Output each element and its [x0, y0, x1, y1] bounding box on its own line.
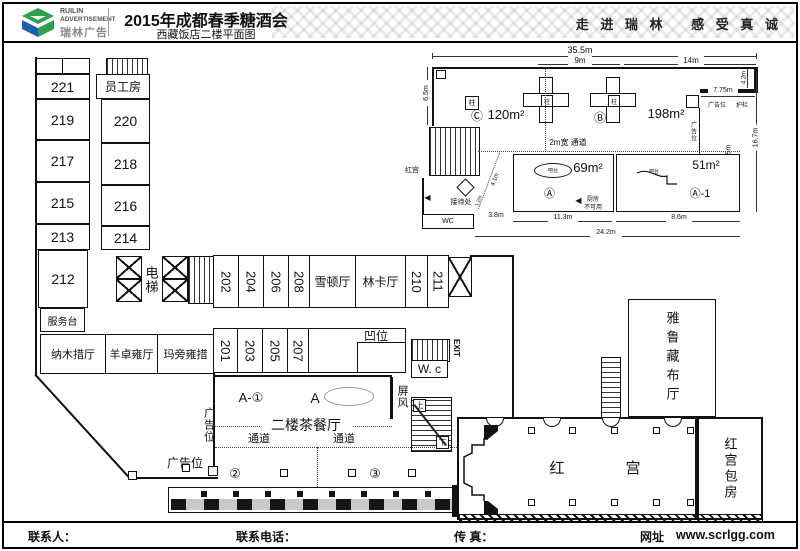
redpalace-private-room: 红宫包房 — [697, 417, 763, 520]
dim-tick — [432, 53, 433, 59]
dim-42-label: 4.2m — [740, 67, 749, 89]
passage-2m-label: 2m宽 通道 — [540, 137, 596, 148]
footer-contact-label: 联系人： — [28, 528, 76, 545]
wall — [213, 375, 392, 377]
zone-c-area: 120m² — [484, 107, 528, 121]
dim-14-label: 14m — [678, 56, 704, 65]
wc-room: W. c — [411, 360, 448, 378]
ad-pos-vertical-label: 广告位 — [688, 115, 698, 147]
cross-structure: 柱 — [523, 77, 569, 123]
booth-211: 211 — [427, 255, 449, 308]
header: RUILIN ADVERTISEMENT 瑞林广告 2015年成都春季糖酒会 西… — [4, 4, 796, 43]
column-square — [128, 471, 137, 480]
column-square — [569, 427, 576, 434]
column-square — [280, 469, 288, 477]
booth-204-label: 204 — [244, 271, 259, 293]
reception-label: 接待处 — [447, 197, 475, 206]
booth-206-label: 206 — [269, 271, 284, 293]
room-215: 215 — [35, 182, 90, 224]
hall-mapangyong-label: 玛旁雍措 — [164, 346, 208, 362]
column-square — [208, 466, 218, 476]
elevator-icon — [116, 279, 142, 302]
column-label: 柱 — [541, 95, 553, 107]
column-square — [611, 499, 618, 506]
wall — [432, 67, 758, 69]
booth-206: 206 — [263, 255, 289, 308]
column-square — [611, 427, 618, 434]
hall-yarlung: 雅鲁藏布厅 — [628, 299, 716, 417]
zone-c-mark: Ⓒ — [470, 108, 484, 122]
flyer-sheet: RUILIN ADVERTISEMENT 瑞林广告 2015年成都春季糖酒会 西… — [0, 0, 800, 551]
bar-counter-oval: 吧台 — [534, 163, 572, 178]
booth-208-label: 208 — [292, 271, 307, 293]
booth-207-label: 207 — [291, 340, 306, 362]
booth-205: 205 — [262, 328, 288, 373]
hall-mapangyong: 玛旁雍措 — [157, 334, 214, 374]
booth-207: 207 — [287, 328, 309, 373]
hall-yangzhuoyong-label: 羊卓雍厅 — [110, 346, 154, 362]
footer-phone-label: 联系电话： — [236, 528, 296, 545]
wall — [512, 255, 514, 417]
recess-label: 凹位 — [358, 329, 394, 342]
booth-210-label: 210 — [409, 271, 424, 293]
room-218: 218 — [101, 143, 150, 185]
hall-linka: 林卡厅 — [355, 255, 406, 308]
hall-yarlung-label: 雅鲁藏布厅 — [663, 311, 682, 406]
room-220-label: 220 — [114, 113, 137, 129]
dim-242-label: 24.2m — [590, 228, 622, 237]
page-subtitle: 西藏饭店二楼平面图 — [116, 26, 296, 42]
bar-label-2: 吧台 — [646, 167, 662, 175]
screen-label: 屏风 — [395, 381, 409, 413]
room-215-label: 215 — [51, 195, 74, 211]
room-221-label: 221 — [51, 79, 74, 95]
dim-775-label: 7.75m — [708, 86, 738, 95]
dim-total-label: 35.5m — [560, 45, 600, 55]
zone-a-mark-label: Ⓐ — [543, 186, 556, 199]
stairs-wc-icon — [411, 339, 450, 362]
room-218-label: 218 — [114, 156, 137, 172]
redpalace-label-1: 红 — [547, 457, 567, 477]
booth-201-label: 201 — [218, 340, 233, 362]
zone-b-area: 198m² — [643, 106, 689, 121]
room-217: 217 — [35, 140, 90, 182]
decor-band — [168, 487, 456, 513]
booth-204: 204 — [238, 255, 264, 308]
room-221: 221 — [35, 74, 90, 99]
staff-room: 员工房 — [96, 74, 150, 99]
elevator-label: 电梯 — [142, 257, 160, 303]
hall-namucuo: 纳木措厅 — [40, 334, 106, 374]
hall-yangzhuoyong: 羊卓雍厅 — [105, 334, 158, 374]
header-divider — [108, 8, 109, 36]
column-square — [569, 499, 576, 506]
room-box-empty-b — [62, 58, 90, 74]
column-square — [653, 499, 660, 506]
room-219: 219 — [35, 99, 90, 140]
zone-b-mark: Ⓑ — [593, 110, 607, 124]
hall-xuedun-label: 雪顿厅 — [314, 273, 350, 290]
elevator-icon — [116, 256, 142, 279]
footer-fax-label: 传 真： — [454, 528, 493, 545]
column-label: 柱 — [608, 95, 620, 107]
ruilin-logo-icon — [20, 7, 56, 38]
room-214-label: 214 — [114, 230, 137, 246]
ad-pos-small-label: 广告位 — [705, 100, 729, 108]
column-square — [528, 499, 535, 506]
logo-text-cn: 瑞林广告 — [60, 24, 108, 40]
elevator-icon — [162, 279, 188, 302]
wall — [130, 477, 218, 479]
stairs-upper-icon — [429, 127, 480, 176]
room-213-label: 213 — [51, 229, 74, 245]
hall-linka-label: 林卡厅 — [362, 273, 398, 290]
upper-wc-label: WC — [442, 218, 454, 225]
ad-column-box — [686, 95, 699, 108]
marker-2: ② — [227, 466, 243, 482]
column-square — [687, 499, 694, 506]
upper-wc-box: WC — [422, 214, 474, 229]
column-square — [436, 70, 446, 79]
room-212-label: 212 — [51, 271, 74, 287]
red-dir-label: 红宫 — [402, 165, 422, 174]
decor-squares — [175, 491, 449, 497]
zone-a1-mark-label: Ⓐ-1 — [684, 186, 716, 199]
room-220: 220 — [101, 99, 150, 143]
booth-202-label: 202 — [219, 271, 234, 293]
column-square — [528, 427, 535, 434]
booth-211-label: 211 — [431, 271, 446, 292]
staff-room-label: 员工房 — [105, 78, 141, 95]
room-box-empty-a — [35, 58, 63, 74]
service-desk: 服务台 — [40, 308, 85, 332]
footer: 联系人： 联系电话： 传 真： 网址 www.scrlgg.com — [4, 521, 796, 547]
stairs-top-icon — [106, 58, 148, 75]
dotted-line — [478, 151, 740, 152]
dimension-line — [701, 96, 755, 97]
dim-113-label: 11.3m — [548, 213, 578, 222]
booth-202: 202 — [213, 255, 239, 308]
kitchen-note-2: 不可用 — [582, 202, 604, 210]
slogan: 走 进 瑞 林 感 受 真 诚 — [576, 14, 782, 33]
ad-side-label: 广告位 — [201, 402, 216, 447]
hall-namucuo-label: 纳木措厅 — [51, 346, 95, 362]
footer-web-label: 网址 — [640, 528, 664, 545]
wall — [470, 255, 514, 257]
arrow-left-icon: ◀ — [423, 193, 432, 202]
booth-210: 210 — [405, 255, 428, 308]
exit-label: EXIT — [450, 332, 463, 364]
marker-3: ③ — [367, 466, 383, 482]
passage-label: 通道 — [243, 431, 275, 445]
stairs-yarlung-icon — [601, 357, 621, 419]
zone-a1-area-label: 51m² — [690, 158, 722, 171]
dim-9-label: 9m — [568, 56, 592, 65]
room-217-label: 217 — [51, 153, 74, 169]
logo-text-ruilin: RUILIN — [60, 8, 83, 15]
room-216: 216 — [101, 185, 150, 226]
column-square — [182, 464, 190, 472]
column-square — [408, 469, 416, 477]
table-oval — [324, 387, 374, 406]
dim-86-label: 8.6m — [666, 213, 692, 222]
room-213: 213 — [35, 224, 90, 250]
room-212: 212 — [38, 250, 88, 308]
redpalace-private-label: 红宫包房 — [721, 437, 740, 501]
booth-203: 203 — [237, 328, 263, 373]
redpalace-label-2: 宫 — [623, 457, 643, 477]
wall — [432, 67, 434, 126]
dim-167-label: 16.7m — [752, 125, 761, 151]
room-216-label: 216 — [114, 198, 137, 214]
dimension-line — [432, 56, 757, 57]
zone-a1-label: A-① — [230, 389, 272, 406]
room-219-label: 219 — [51, 112, 74, 128]
booth-205-label: 205 — [268, 340, 283, 362]
room-214: 214 — [101, 226, 150, 250]
dim-tick — [756, 53, 757, 59]
wall — [422, 178, 424, 214]
rail-small-label: 护栏 — [734, 100, 750, 108]
elevator-icon — [162, 256, 188, 279]
column-square — [687, 427, 694, 434]
decor-strip — [171, 499, 453, 510]
wc-label: W. c — [418, 362, 441, 376]
recess-box — [357, 342, 406, 373]
zone-a-area-label: 69m² — [570, 160, 606, 174]
booth-201: 201 — [213, 328, 238, 373]
booth-203-label: 203 — [243, 340, 258, 362]
zone-a-label: A — [305, 389, 325, 406]
wall-left-outer — [35, 57, 37, 375]
screen-bar — [390, 377, 393, 419]
footer-website: www.scrlgg.com — [676, 528, 775, 542]
bar-label: 吧台 — [548, 167, 558, 174]
dim-65-label: 6.5m — [421, 80, 431, 106]
stage-shape — [458, 423, 502, 517]
dim-38-label: 3.8m — [484, 211, 508, 220]
service-desk-label: 服务台 — [48, 313, 78, 328]
booth-208: 208 — [288, 255, 310, 308]
elevator-icon — [448, 257, 472, 297]
hall-xuedun: 雪顿厅 — [309, 255, 356, 308]
column-square — [653, 427, 660, 434]
passage-label: 通道 — [328, 431, 360, 445]
column-square — [348, 469, 356, 477]
stairs-mid-icon — [188, 256, 215, 304]
